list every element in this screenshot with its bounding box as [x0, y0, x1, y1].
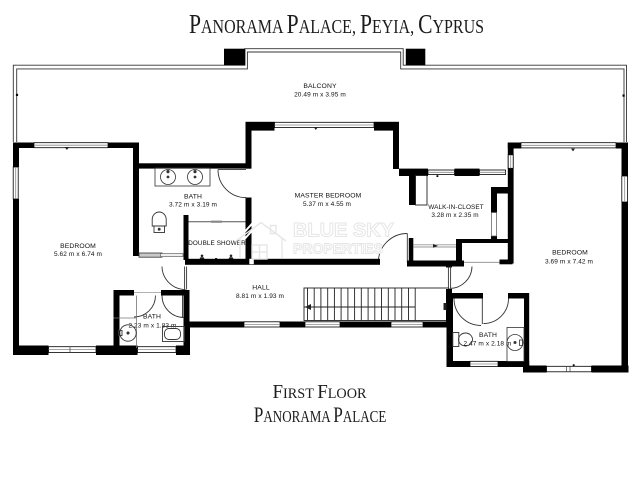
svg-text:3.69 m x 7.42 m: 3.69 m x 7.42 m — [545, 259, 593, 266]
svg-text:PROPERTIES: PROPERTIES — [293, 242, 383, 258]
svg-text:BATH: BATH — [143, 314, 161, 321]
svg-text:5.37 m x 4.55 m: 5.37 m x 4.55 m — [303, 201, 351, 208]
svg-text:BLUE SKY: BLUE SKY — [293, 220, 394, 242]
svg-text:BATH: BATH — [479, 332, 497, 339]
svg-text:BALCONY: BALCONY — [303, 83, 337, 90]
svg-text:DOUBLE SHOWER: DOUBLE SHOWER — [188, 240, 246, 247]
svg-text:BATH: BATH — [184, 194, 202, 201]
svg-text:3.72 m x 3.19 m: 3.72 m x 3.19 m — [169, 202, 217, 209]
svg-text:HALL: HALL — [252, 285, 270, 292]
svg-text:8.81 m x 1.93 m: 8.81 m x 1.93 m — [236, 293, 284, 300]
svg-text:MASTER BEDROOM: MASTER BEDROOM — [295, 193, 362, 200]
svg-text:WALK-IN-CLOSET: WALK-IN-CLOSET — [428, 204, 484, 211]
svg-text:BEDROOM: BEDROOM — [552, 250, 588, 257]
svg-text:BEDROOM: BEDROOM — [60, 243, 96, 250]
svg-text:3.28 m x 2.35 m: 3.28 m x 2.35 m — [431, 212, 478, 219]
svg-text:20.49 m x 3.95 m: 20.49 m x 3.95 m — [294, 92, 346, 99]
svg-text:5.62 m x 6.74 m: 5.62 m x 6.74 m — [54, 251, 102, 258]
